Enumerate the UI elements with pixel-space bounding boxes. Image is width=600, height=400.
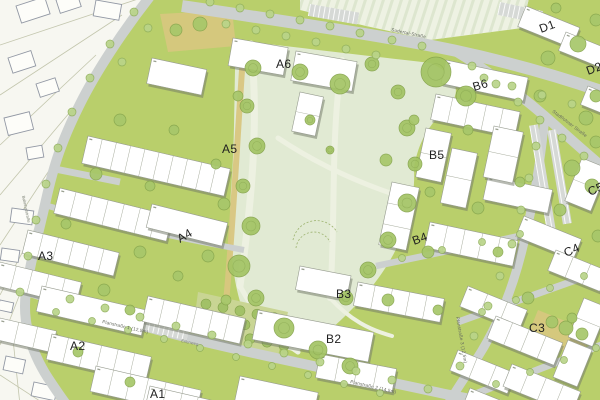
tree [484,302,492,310]
tree [305,115,315,125]
tree [173,271,183,281]
tree [551,3,561,13]
tree [590,90,600,102]
tree [222,20,230,28]
tree [463,125,473,135]
tree [456,362,464,370]
tree [399,255,406,262]
tree [532,142,540,150]
tree [418,42,426,50]
tree [356,29,364,37]
tree [161,336,168,343]
tree [515,177,525,187]
tree [269,363,276,370]
tree [208,331,216,339]
tree [193,17,207,31]
tree [517,206,525,214]
tree [242,217,260,235]
tree [360,262,376,278]
existing-building [26,145,44,160]
tree [330,74,350,94]
tree [218,198,230,210]
tree [170,24,182,36]
tree [593,345,600,352]
tree [479,239,486,246]
tree [380,154,392,166]
tree [514,98,522,106]
tree [236,4,244,12]
tree [554,204,566,216]
tree [248,290,264,306]
tree [564,160,580,176]
tree [114,114,126,126]
tree [53,309,60,316]
tree [326,22,334,30]
tree [101,304,109,312]
tree [479,309,486,316]
tree [536,116,544,124]
tree [433,305,443,315]
tree [66,295,74,303]
tree [202,250,214,262]
tree [581,273,588,280]
tree [134,246,146,258]
block-label-c3: C3 [529,321,545,335]
orchard-tree [235,306,245,316]
tree [561,357,568,364]
tree [472,202,484,214]
tree [527,369,534,376]
tree [388,376,396,384]
tree [125,377,135,387]
tree [32,216,40,224]
tree [309,341,327,359]
tree [380,232,396,248]
tree [382,294,394,306]
tree [228,255,250,277]
tree [522,292,534,304]
tree [546,316,558,328]
tree [136,313,144,321]
tree [568,100,576,108]
tree [233,354,240,361]
tree [493,381,500,388]
existing-building [0,248,19,262]
tree [61,219,71,229]
tree [398,194,416,212]
tree [493,247,503,257]
tree [538,91,546,99]
block-label-b3: B3 [336,287,351,301]
tree [16,288,24,296]
tree [305,372,312,379]
tree [422,246,434,258]
block-label-a6: A6 [276,57,291,71]
tree [206,0,214,6]
tree [342,45,350,53]
tree [282,32,290,40]
tree [468,62,476,70]
tree [352,367,360,375]
tree [425,187,435,197]
tree [372,51,380,59]
tree [86,74,94,82]
tree [240,99,254,113]
tree [68,108,76,116]
tree [125,305,135,315]
tree [590,136,600,148]
tree [508,82,516,90]
tree [579,111,593,125]
tree [89,318,96,325]
tree [274,318,294,338]
tree [244,340,252,348]
block-label-b5: B5 [429,148,444,162]
tree [567,313,577,323]
tree [492,80,500,88]
tree [409,115,419,125]
tree [145,181,155,191]
tree [576,328,588,340]
tree [24,252,32,260]
tree [312,38,320,46]
tree [388,36,396,44]
tree [296,16,304,24]
tree [106,40,114,48]
tree [541,51,555,65]
tree [233,91,243,101]
tree [525,174,533,182]
tree [421,57,451,87]
tree [470,332,478,340]
site-plan-map[interactable]: Sudertal-Straße Stadtlohner Straße Plans… [0,0,600,400]
tree [118,58,126,66]
block-label-a1: A1 [150,387,165,400]
tree [341,381,348,388]
tree [316,358,324,366]
block-label-a3: A3 [38,249,53,263]
tree [517,231,524,238]
tree [508,240,516,248]
block-label-b2: B2 [326,332,341,346]
tree [547,285,554,292]
orchard-tree [201,299,211,309]
tree [408,157,422,171]
map-canvas[interactable]: Sudertal-Straße Stadtlohner Straße Plans… [0,0,600,400]
tree [391,85,405,99]
tree [292,64,308,80]
tree [590,14,600,26]
tree [172,322,180,330]
tree [326,146,334,154]
tree [90,168,102,180]
tree [245,60,261,76]
tree [211,159,221,169]
tree [513,297,520,304]
tree [580,152,588,160]
tree [424,385,432,393]
block-label-a5: A5 [222,142,237,156]
tree [252,26,260,34]
tree [570,36,586,52]
tree [144,24,152,32]
tree [236,179,250,193]
tree [54,144,62,152]
tree [439,247,446,254]
tree [266,10,274,18]
tree [221,295,231,305]
tree [280,349,288,357]
tree [558,134,566,142]
tree [42,180,50,188]
block-label-a2: A2 [70,339,85,353]
tree [130,8,138,16]
tree [169,125,179,135]
tree [496,272,504,280]
tree [98,284,110,296]
tree [249,138,265,154]
